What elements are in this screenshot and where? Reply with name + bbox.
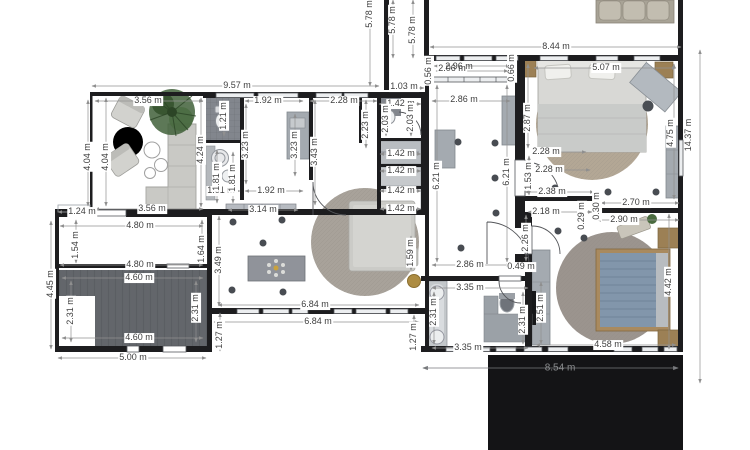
dimension-label: 0.66 m: [507, 53, 517, 83]
dimension-label: 2.87 m: [523, 103, 533, 133]
side-table[interactable]: [144, 142, 160, 158]
dimension-label: 3.23 m: [241, 130, 251, 160]
dimension-label: 5.78 m: [408, 15, 418, 45]
dimension-label: 2.28 m: [534, 165, 564, 175]
dimension-label: 3.35 m: [455, 283, 485, 293]
dimension-label: 2.31 m: [66, 296, 76, 326]
dimension-label: 1.42 m: [386, 204, 416, 214]
corner-sofa[interactable]: [146, 124, 196, 209]
dimension-label: 0.49 m: [506, 262, 536, 272]
dimension-label: 4.75 m: [666, 118, 676, 148]
dimension-label: 1.59 m: [406, 238, 416, 268]
dimension-label: 2.70 m: [621, 198, 651, 208]
dimension-label: 6.21 m: [432, 161, 442, 191]
dimension-label: 0.56 m: [424, 56, 434, 86]
dimension-label: 3.49 m: [214, 245, 224, 275]
dimension-label: 5.07 m: [591, 63, 621, 73]
dimension-label: 1.54 m: [71, 230, 81, 260]
dimension-label: 2.28 m: [531, 147, 561, 157]
dimension-label: 3.14 m: [248, 205, 278, 215]
nightstand[interactable]: [658, 228, 681, 248]
dimension-label: 3.35 m: [453, 343, 483, 353]
dimension-label: 3.56 m: [133, 96, 163, 106]
hall-console[interactable]: [502, 96, 516, 145]
dimension-label: 8.44 m: [541, 42, 571, 52]
small-plant-icon: [647, 214, 657, 224]
dimension-label: 2.28 m: [329, 96, 359, 106]
dimension-label: 2.31 m: [429, 297, 439, 327]
dimension-label: 2.31 m: [191, 293, 201, 323]
dimension-label: 1.42 m: [386, 149, 416, 159]
dimension-label: 4.80 m: [125, 221, 155, 231]
dimension-label: 1.03 m: [389, 82, 419, 92]
dimension-label: 4.58 m: [593, 340, 623, 350]
dimension-label: 5.78 m: [388, 5, 398, 35]
floor-plan-drawing: [0, 0, 750, 450]
dimension-label: 4.42 m: [664, 267, 674, 297]
dimension-label: 4.60 m: [124, 273, 154, 283]
dimension-label: 4.45 m: [46, 269, 56, 299]
dimension-label: 6.84 m: [303, 317, 333, 327]
dimension-label: 4.04 m: [83, 142, 93, 172]
dimension-label: 1.81 m: [228, 163, 238, 193]
dimension-label: 9.57 m: [222, 81, 252, 91]
dimension-label: 1.21 m: [219, 101, 229, 131]
dimension-label: 1.27 m: [215, 320, 225, 350]
dimension-label: 2.51 m: [536, 293, 546, 323]
dimension-label: 1.24 m: [67, 207, 97, 217]
kitchen-sink: [290, 118, 305, 128]
dimension-label: 4.80 m: [125, 260, 155, 270]
desk-chair[interactable]: [643, 101, 654, 112]
dimension-label: 14.37 m: [684, 118, 694, 153]
dimension-label: 1.92 m: [253, 96, 283, 106]
dimension-label: 3.23 m: [290, 130, 300, 160]
basin[interactable]: [430, 330, 444, 344]
side-table[interactable]: [145, 168, 156, 179]
dimension-label: 2.03 m: [406, 103, 416, 133]
dimension-label: 8.54 m: [544, 363, 577, 374]
dimension-label: 0.29 m: [577, 201, 587, 231]
floor-plan: 9.57 m 1.03 m 3.56 m 3.56 m 1.92 m 2.28 …: [0, 0, 750, 450]
dimension-label: 4.60 m: [124, 333, 154, 343]
dimension-label: 6.21 m: [502, 157, 512, 187]
side-table[interactable]: [155, 159, 168, 172]
dimension-label: 6.84 m: [300, 300, 330, 310]
dimension-label: 1.81 m: [212, 162, 222, 192]
dimension-label: 2.38 m: [537, 187, 567, 197]
dimension-label: 1.27 m: [409, 322, 419, 352]
bedroom2-bed[interactable]: [596, 249, 670, 331]
dimension-label: 3.43 m: [310, 137, 320, 167]
dimension-label: 2.31 m: [518, 305, 528, 335]
dimension-label: 1.42 m: [386, 166, 416, 176]
pillow: [545, 64, 572, 80]
dimension-label: 3.56 m: [137, 204, 167, 214]
dimension-label: 1.42 m: [386, 186, 416, 196]
sofa[interactable]: [596, 0, 674, 23]
dimension-label: 1.92 m: [256, 186, 286, 196]
dimension-label: 4.24 m: [196, 135, 206, 165]
dimension-label: 2.86 m: [455, 260, 485, 270]
dimension-label: 5.00 m: [118, 353, 148, 363]
dimension-label: 2.18 m: [531, 207, 561, 217]
dimension-label: 2.96 m: [444, 62, 474, 72]
dimension-label: 2.26 m: [521, 223, 531, 253]
dimension-label: 2.90 m: [609, 215, 639, 225]
dimension-label: 4.04 m: [101, 142, 111, 172]
dimension-label: 1.64 m: [197, 234, 207, 264]
dimension-label: 2.86 m: [449, 95, 479, 105]
dimension-label: 1.53 m: [524, 161, 534, 191]
pouf[interactable]: [408, 275, 421, 288]
dimension-label: 5.78 m: [365, 0, 375, 29]
terrace-area[interactable]: [488, 355, 683, 450]
dimension-label: 2.03 m: [381, 104, 391, 134]
dimension-label: 2.23 m: [361, 110, 371, 140]
dimension-label: 0.30 m: [592, 191, 602, 221]
